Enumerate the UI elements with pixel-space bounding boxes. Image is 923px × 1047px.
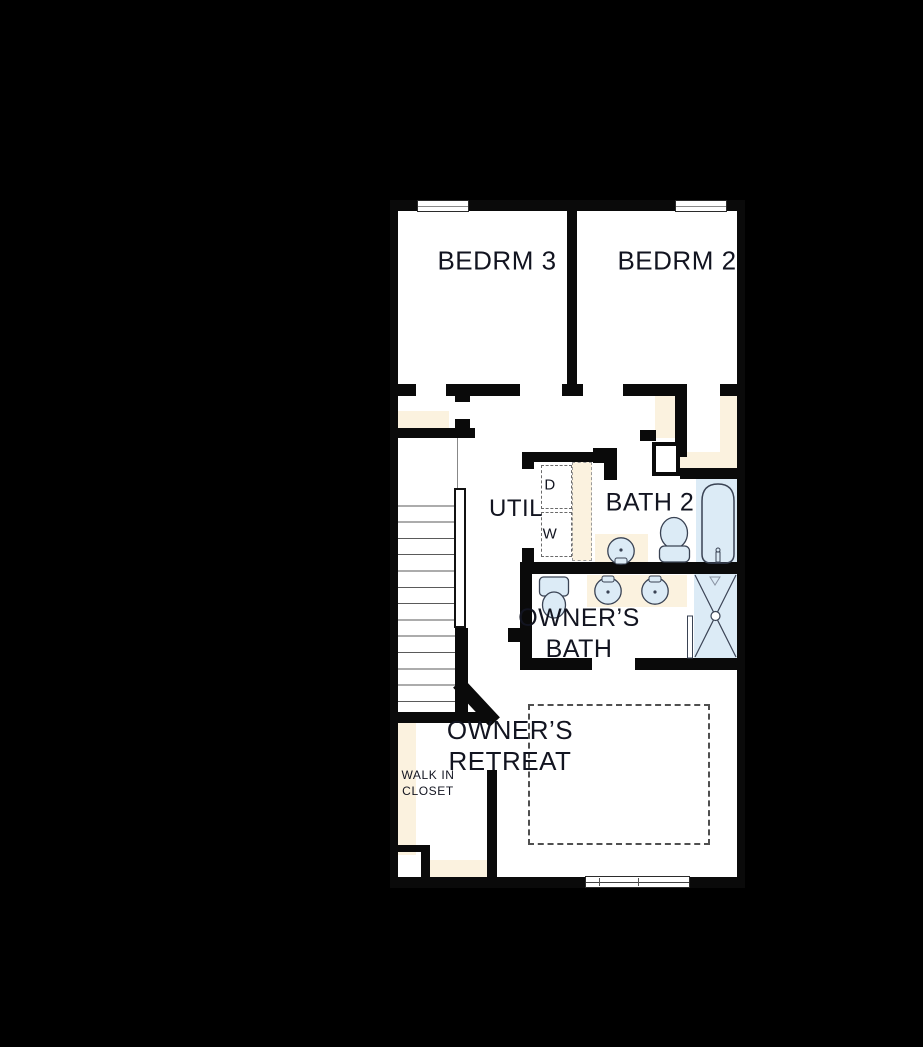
sink-drain xyxy=(619,548,622,551)
sink-faucet xyxy=(602,576,614,582)
bedrm3-label: BEDRM 3 xyxy=(437,246,556,277)
sink-drain xyxy=(653,590,656,593)
shower-head xyxy=(710,577,720,585)
shower-door xyxy=(688,616,693,658)
bathtub xyxy=(702,484,734,563)
sink-drain xyxy=(606,590,609,593)
owners-bath-label: OWNER’S BATH xyxy=(518,603,640,665)
floor-plan-canvas: BEDRM 3 BEDRM 2 UTIL BATH 2 OWNER’S BATH… xyxy=(0,0,923,1047)
dryer-label: D xyxy=(544,477,555,494)
diagonal-wall xyxy=(463,688,490,717)
walkin-closet-label: WALK IN CLOSET xyxy=(401,767,454,799)
shower-drain xyxy=(711,612,720,621)
bath2-label: BATH 2 xyxy=(606,489,695,518)
floor-plan: BEDRM 3 BEDRM 2 UTIL BATH 2 OWNER’S BATH… xyxy=(390,200,745,888)
tub-faucet xyxy=(716,552,720,562)
tub-drain xyxy=(716,548,720,552)
owners-retreat-label: OWNER’S RETREAT xyxy=(447,715,573,777)
sink-faucet xyxy=(649,576,661,582)
bedrm2-label: BEDRM 2 xyxy=(617,246,736,277)
washer-label: W xyxy=(543,526,558,543)
toilet xyxy=(661,518,688,549)
toilet-tank xyxy=(660,546,690,562)
sink-faucet xyxy=(615,558,627,564)
util-label: UTIL xyxy=(489,495,543,523)
